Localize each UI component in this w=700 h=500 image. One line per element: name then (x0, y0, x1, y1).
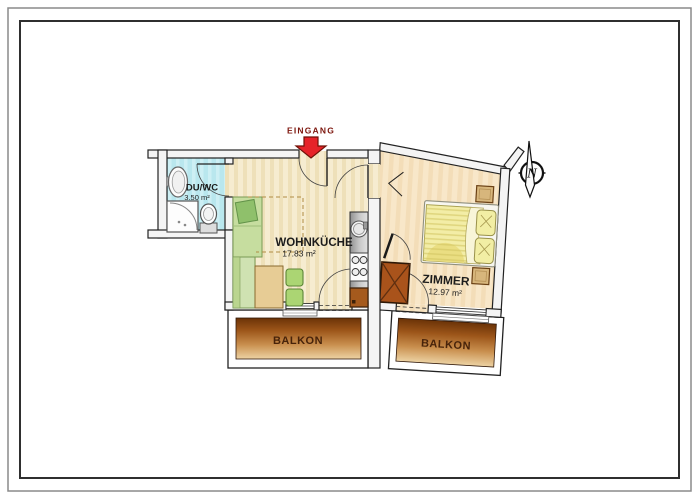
kitchen-cabinet (350, 288, 368, 307)
nightstand (476, 186, 494, 203)
dining-table (255, 266, 283, 308)
unit-living: BALKON (148, 150, 380, 368)
shower-tray (167, 201, 198, 232)
doorway-floor (225, 164, 233, 197)
balcony-left: BALKON (228, 310, 368, 368)
wall (428, 305, 436, 313)
chair (286, 269, 303, 286)
wall (368, 150, 380, 164)
wall (225, 197, 233, 230)
toilet (200, 204, 217, 233)
wall (158, 150, 167, 238)
wall (225, 230, 233, 310)
wall (368, 198, 380, 368)
double-bed (421, 201, 499, 267)
pillow (476, 210, 496, 236)
unit-bedroom: BALKON (366, 139, 524, 376)
floor-plan: BALKON (0, 0, 700, 500)
wall (327, 150, 368, 158)
kitchen-sink (351, 221, 368, 237)
wall (225, 158, 233, 164)
stove (350, 253, 368, 281)
doorway-floor (318, 302, 352, 310)
north-compass-icon: N (519, 141, 546, 197)
nightstand (472, 268, 490, 285)
window-sill (283, 310, 317, 316)
sofa (233, 257, 255, 308)
single-bed (233, 197, 262, 257)
bath-area: 3.50 m² (184, 193, 210, 202)
blanket-stripes (423, 205, 472, 264)
bath-label: DU/WC (186, 183, 218, 194)
wardrobe (379, 262, 409, 304)
wall (148, 150, 299, 158)
kitchen-counter (350, 212, 368, 307)
doorway-floor (368, 164, 380, 198)
entrance-label: EINGANG (287, 125, 335, 135)
living-label: WOHNKÜCHE (275, 236, 353, 249)
pillow (474, 238, 494, 264)
compass-label: N (526, 166, 538, 181)
living-area: 17.83 m² (282, 248, 316, 258)
floor-plan-page: BALKON (0, 0, 700, 500)
bedroom-area: 12.97 m² (428, 286, 462, 298)
chair (286, 289, 303, 306)
pillow (235, 200, 257, 224)
wall (486, 308, 501, 317)
wall (314, 302, 319, 310)
balcony-left-label: BALKON (273, 335, 323, 347)
